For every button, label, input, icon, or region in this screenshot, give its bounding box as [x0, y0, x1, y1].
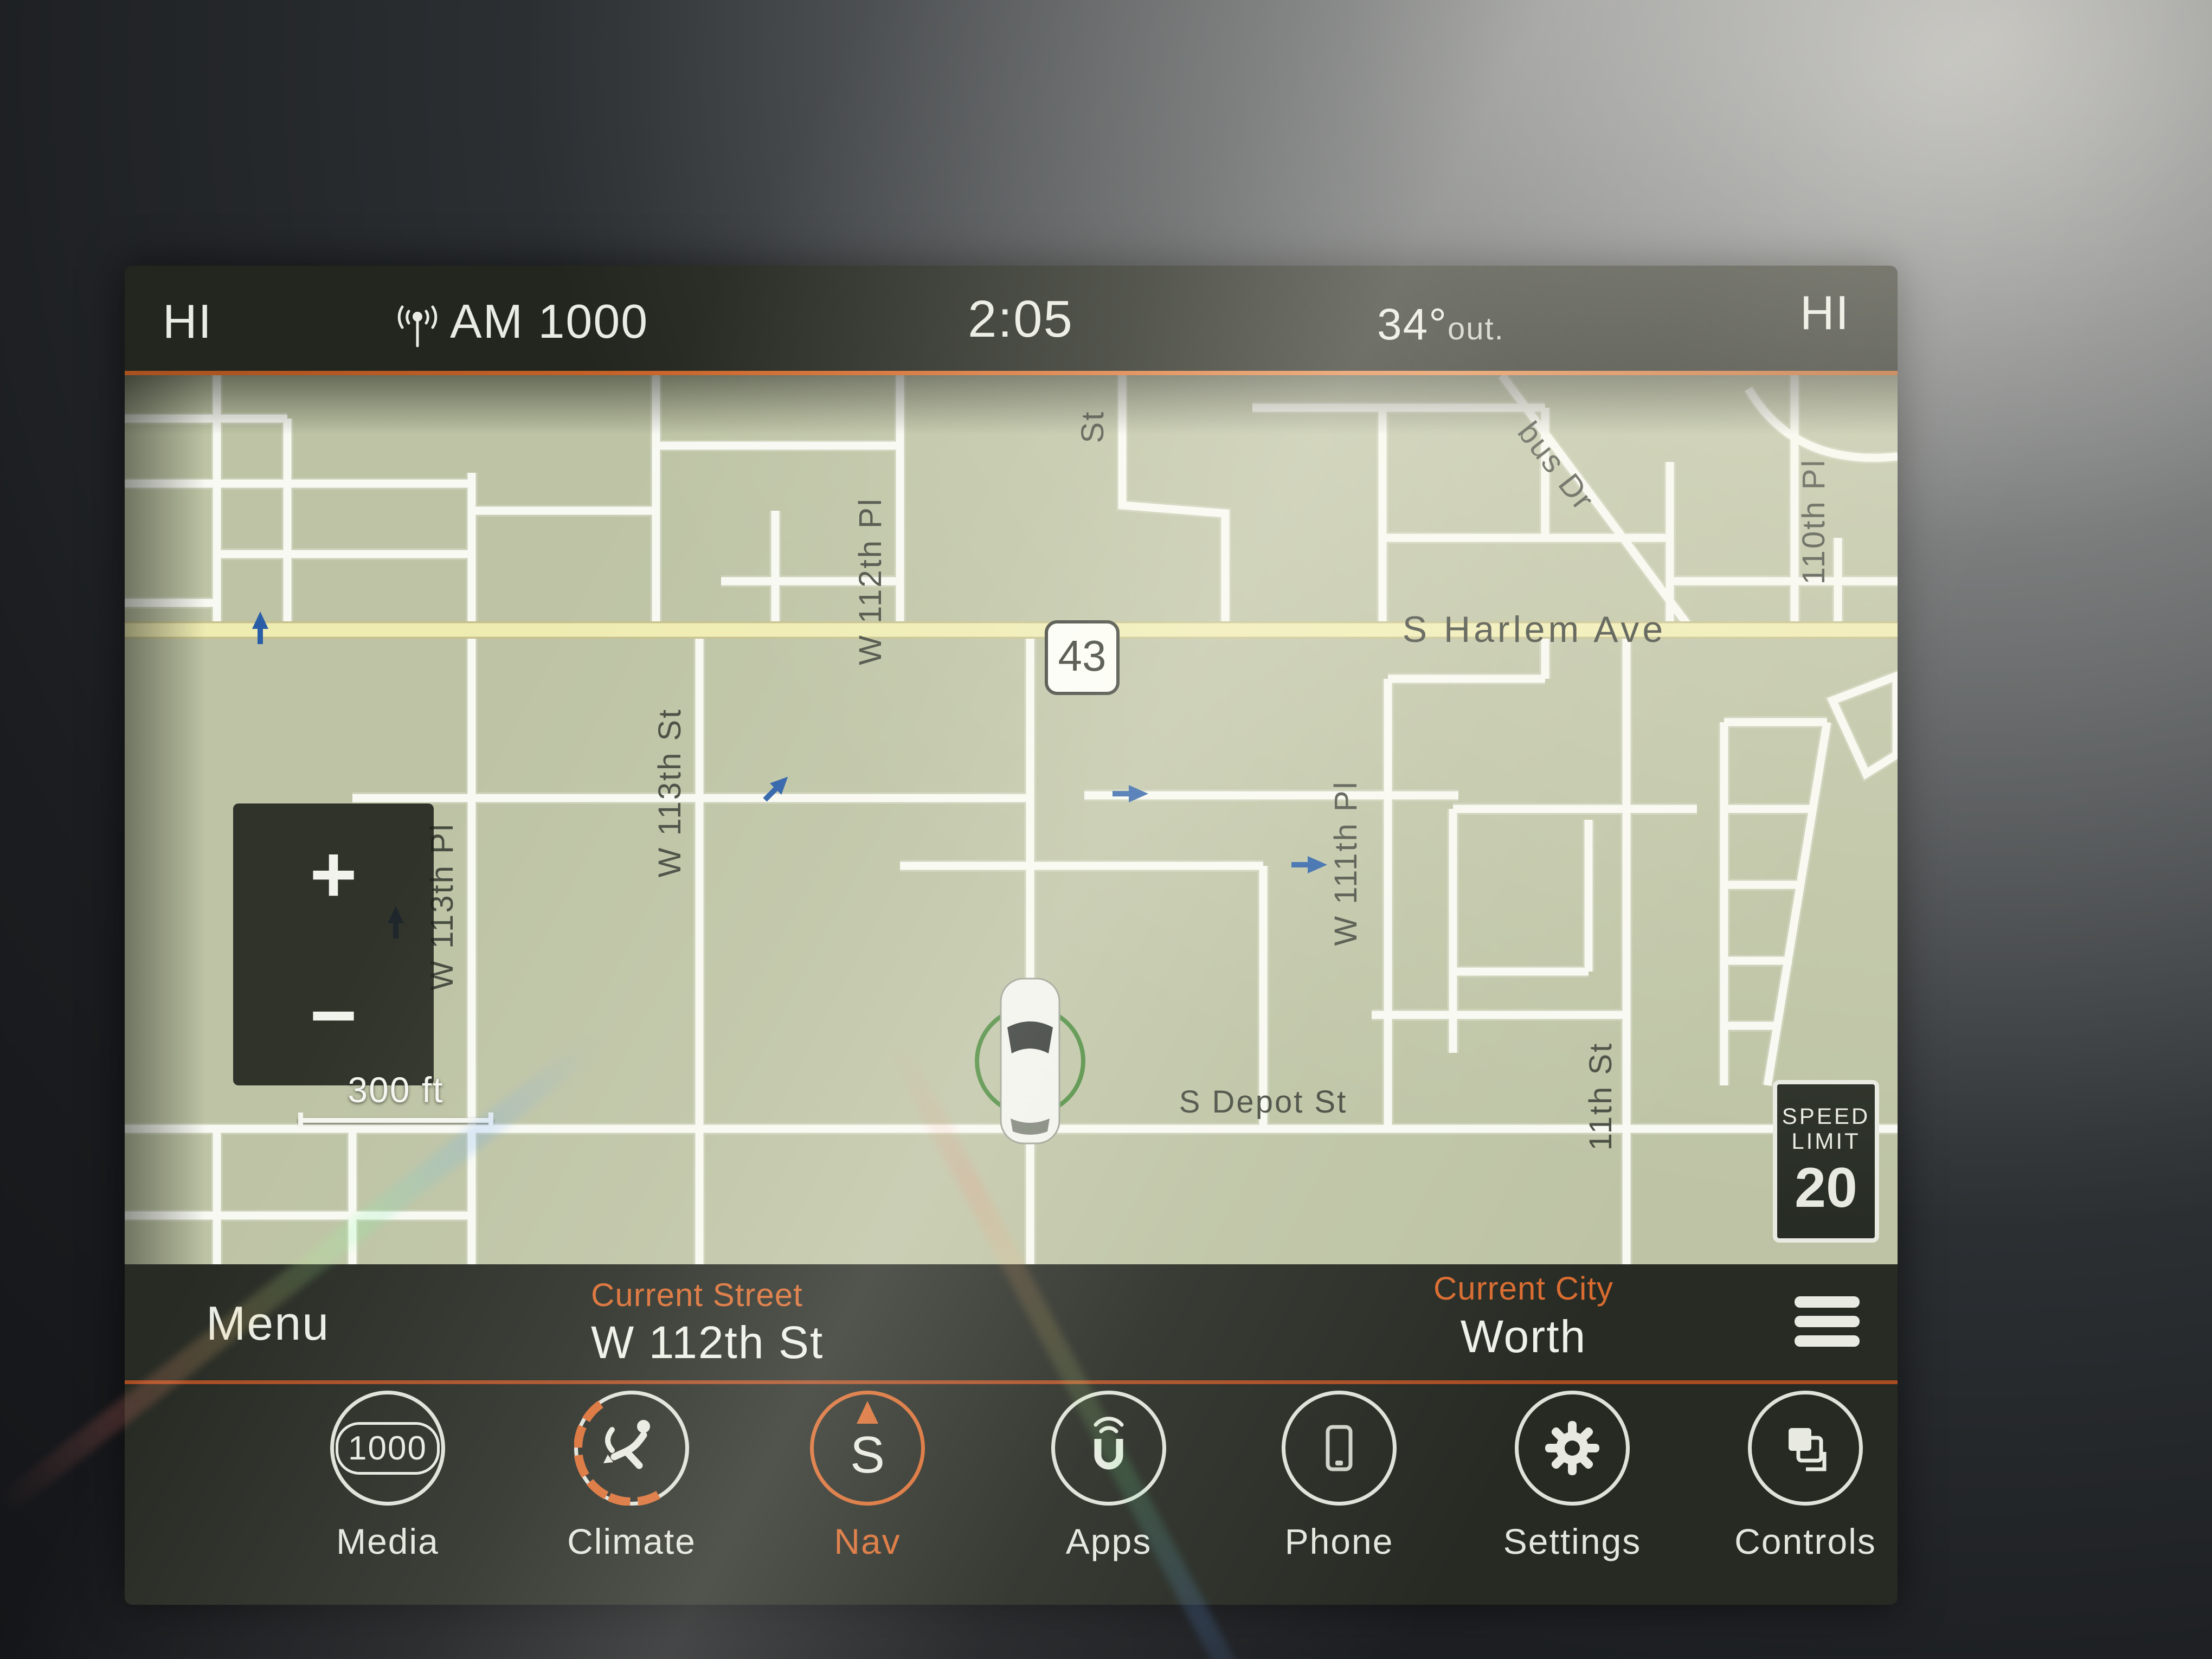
apps-uconnect-icon	[1051, 1391, 1166, 1506]
speed-limit-word2: LIMIT	[1791, 1129, 1860, 1154]
current-street-label: Current Street	[591, 1276, 803, 1314]
map-scale: 300 ft	[282, 1069, 510, 1123]
app-settings-label: Settings	[1491, 1521, 1654, 1562]
vehicle-marker	[977, 979, 1083, 1143]
map-zoom-panel: + −	[233, 803, 434, 1085]
street-label-columbus: bus Dr	[1511, 415, 1602, 518]
app-settings[interactable]: Settings	[1491, 1391, 1654, 1562]
street-label-st-partial: St	[1075, 410, 1110, 443]
menu-button[interactable]: Menu	[206, 1296, 330, 1351]
media-icon: 1000	[330, 1391, 445, 1506]
app-climate-label: Climate	[550, 1521, 713, 1562]
current-city-value: Worth	[1461, 1310, 1587, 1363]
street-label-w113st: W 113th St	[652, 708, 687, 878]
clock: 2:05	[968, 290, 1073, 349]
street-label-w111pl: W 111th Pl	[1328, 780, 1364, 946]
settings-gear-icon	[1515, 1391, 1630, 1506]
map-options-menu-icon[interactable]	[1795, 1286, 1865, 1356]
accent-divider-bottom	[125, 1380, 1898, 1384]
climate-icon	[574, 1391, 689, 1506]
status-bar: HI AM 1000 2:05 34°out. HI	[125, 266, 1898, 372]
radio-antenna-icon	[395, 297, 440, 349]
route-shield-43: 43	[1046, 622, 1118, 693]
app-controls-label: Controls	[1724, 1521, 1887, 1562]
speed-limit-word1: SPEED	[1782, 1104, 1870, 1129]
app-media-label: Media	[306, 1521, 469, 1562]
current-street-value: W 112th St	[591, 1316, 824, 1369]
map-scale-bar	[298, 1118, 493, 1123]
street-label-110thpl: 110th Pl	[1796, 459, 1831, 585]
app-bar: 1000 Media Climate	[125, 1384, 1898, 1605]
svg-text:43: 43	[1058, 632, 1107, 680]
app-media[interactable]: 1000 Media	[306, 1391, 469, 1562]
passenger-temp-status: HI	[1800, 285, 1850, 340]
dashboard-photo: HI AM 1000 2:05 34°out. HI	[0, 0, 2212, 1659]
speed-limit-sign: SPEED LIMIT 20	[1773, 1080, 1879, 1243]
navigation-map[interactable]: S Harlem Ave W 112th Pl St W 113th Pl W …	[125, 375, 1898, 1264]
app-controls[interactable]: Controls	[1724, 1391, 1887, 1562]
current-city-label: Current City	[1433, 1270, 1613, 1307]
uconnect-screen: HI AM 1000 2:05 34°out. HI	[125, 266, 1898, 1605]
zoom-in-button[interactable]: +	[233, 803, 434, 944]
nav-info-bar: Menu Current Street W 112th St Current C…	[125, 1264, 1898, 1382]
zoom-out-button[interactable]: −	[233, 944, 434, 1085]
street-label-11thst: 11th St	[1583, 1042, 1618, 1151]
app-nav-label: Nav	[786, 1521, 949, 1562]
current-city: Current City Worth	[1399, 1270, 1648, 1363]
speed-limit-value: 20	[1795, 1157, 1857, 1219]
nav-compass-icon: S	[810, 1391, 925, 1506]
accent-divider-top	[125, 371, 1898, 375]
app-climate[interactable]: Climate	[550, 1391, 713, 1562]
one-way-arrow	[252, 612, 268, 644]
station-preset-badge: 1000	[336, 1422, 440, 1475]
radio-station[interactable]: AM 1000	[450, 294, 648, 349]
app-phone[interactable]: Phone	[1258, 1391, 1420, 1562]
app-apps[interactable]: Apps	[1027, 1391, 1190, 1562]
outside-temperature: 34°out.	[1377, 299, 1504, 350]
compass-needle-icon	[857, 1401, 878, 1424]
street-label-harlem: S Harlem Ave	[1403, 609, 1666, 650]
compass-south-letter: S	[850, 1425, 885, 1485]
app-phone-label: Phone	[1258, 1521, 1420, 1562]
one-way-arrow	[1291, 856, 1327, 873]
street-label-w112pl: W 112th Pl	[853, 497, 888, 665]
controls-layers-icon	[1748, 1391, 1863, 1506]
app-nav[interactable]: S Nav	[786, 1391, 949, 1562]
map-scale-label: 300 ft	[282, 1069, 510, 1110]
street-label-depot: S Depot St	[1179, 1084, 1347, 1120]
app-apps-label: Apps	[1027, 1521, 1190, 1562]
driver-temp-status: HI	[163, 294, 213, 349]
phone-icon	[1282, 1391, 1397, 1506]
